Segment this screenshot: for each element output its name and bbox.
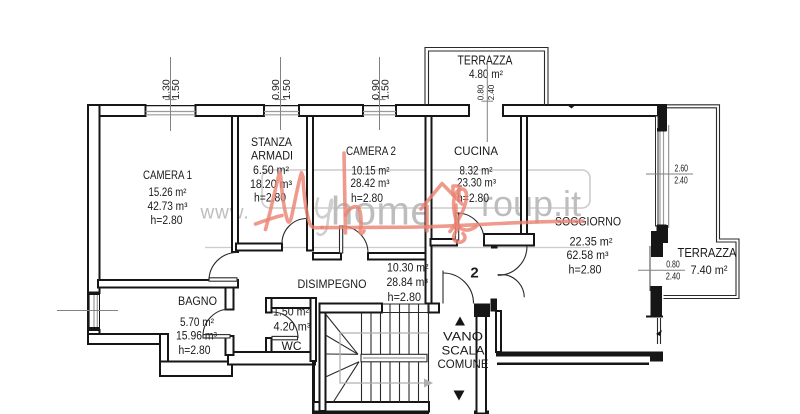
- svg-text:www.: www.: [200, 202, 250, 223]
- svg-text:8.32 m²: 8.32 m²: [460, 166, 493, 178]
- svg-text:4.20 m³: 4.20 m³: [274, 322, 311, 334]
- svg-text:28.42 m³: 28.42 m³: [351, 178, 390, 190]
- svg-text:VANO: VANO: [443, 332, 483, 344]
- svg-text:6.50 m²: 6.50 m²: [253, 165, 289, 177]
- svg-text:10.30 m²: 10.30 m²: [387, 262, 429, 274]
- svg-text:2.40: 2.40: [487, 84, 496, 100]
- svg-text:2.60: 2.60: [675, 164, 689, 175]
- svg-text:h=2.80: h=2.80: [151, 215, 183, 227]
- svg-text:15.26 m²: 15.26 m²: [149, 187, 187, 199]
- svg-text:4.80 m²: 4.80 m²: [469, 69, 503, 81]
- svg-text:22.35 m²: 22.35 m²: [570, 236, 613, 248]
- svg-text:28.84 m³: 28.84 m³: [386, 277, 428, 289]
- svg-text:10.15 m²: 10.15 m²: [352, 166, 390, 178]
- svg-text:1.50: 1.50: [379, 79, 391, 100]
- svg-text:h=2.80: h=2.80: [179, 345, 211, 357]
- svg-text:h=2.80: h=2.80: [569, 265, 602, 277]
- svg-text:CAMERA 1: CAMERA 1: [143, 168, 192, 182]
- svg-text:1.50: 1.50: [170, 79, 182, 100]
- svg-text:STANZA: STANZA: [251, 135, 292, 149]
- svg-text:18.20 m³: 18.20 m³: [250, 179, 292, 191]
- svg-text:2: 2: [470, 265, 478, 282]
- svg-text:CUCINA: CUCINA: [454, 144, 498, 158]
- svg-text:1.50: 1.50: [281, 79, 293, 100]
- svg-text:BAGNO: BAGNO: [178, 294, 217, 308]
- svg-text:0.80: 0.80: [666, 260, 680, 271]
- svg-text:1.50 m²: 1.50 m²: [273, 307, 309, 319]
- svg-text:2.40: 2.40: [666, 271, 681, 282]
- svg-text:2.40: 2.40: [674, 176, 688, 187]
- svg-text:TERRAZZA: TERRAZZA: [678, 246, 738, 260]
- svg-text:SCALA: SCALA: [442, 346, 485, 358]
- svg-text:h=2.80: h=2.80: [351, 193, 383, 205]
- svg-text:COMUNE: COMUNE: [438, 359, 489, 371]
- svg-text:WC: WC: [282, 339, 302, 353]
- svg-text:CAMERA 2: CAMERA 2: [346, 144, 396, 158]
- svg-text:DISIMPEGNO: DISIMPEGNO: [298, 277, 367, 291]
- svg-text:7.40 m²: 7.40 m²: [691, 263, 728, 277]
- svg-text:5.70 m²: 5.70 m²: [180, 317, 214, 329]
- svg-text:h=2.80: h=2.80: [388, 292, 422, 304]
- svg-text:15.96 m³: 15.96 m³: [176, 331, 217, 343]
- svg-text:0.80: 0.80: [476, 84, 485, 100]
- svg-text:TERRAZZA: TERRAZZA: [458, 54, 514, 68]
- svg-text:42.73 m³: 42.73 m³: [148, 201, 188, 213]
- svg-text:ARMADI: ARMADI: [251, 149, 293, 163]
- svg-text:62.58 m³: 62.58 m³: [567, 250, 609, 262]
